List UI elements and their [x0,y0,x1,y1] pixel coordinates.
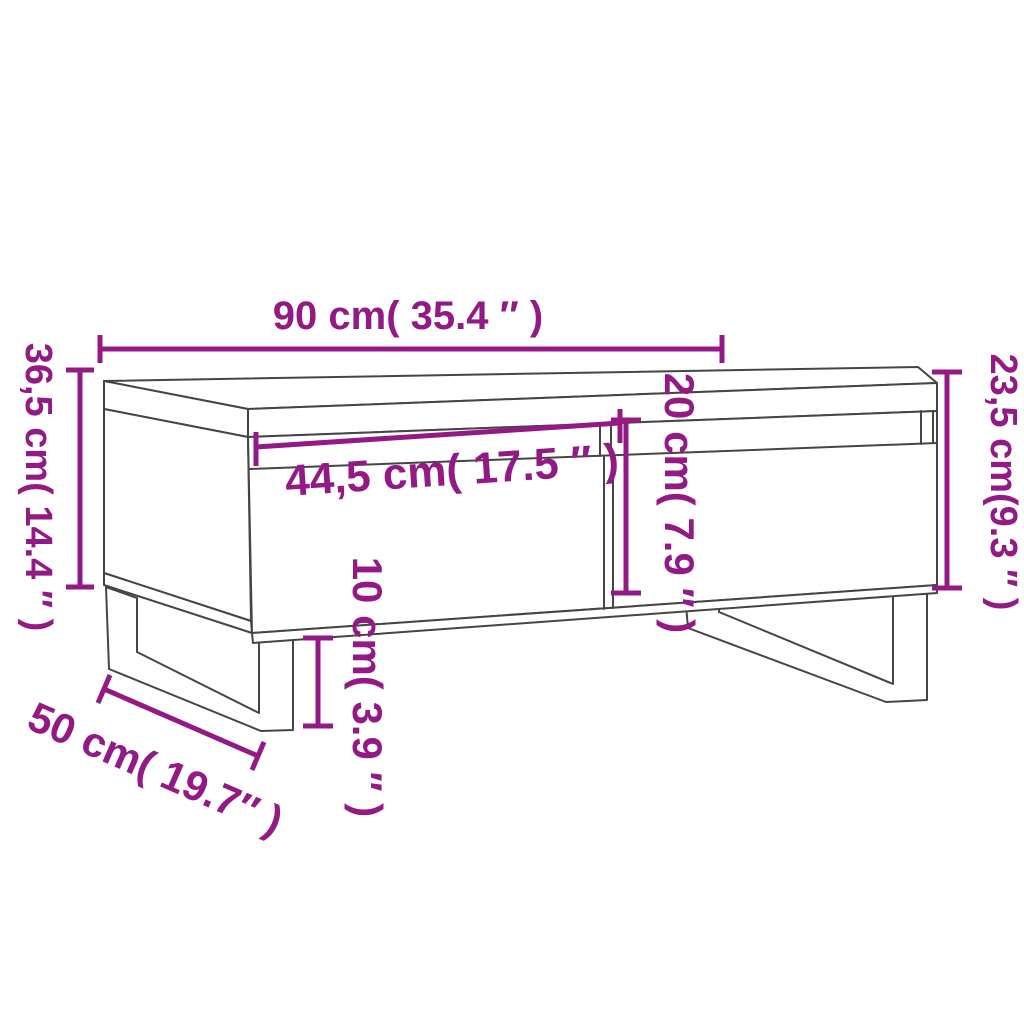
coffee-table-drawing [104,367,937,731]
leg-height-dimension-label: 10 cm( 3.9 ″ ) [344,537,388,837]
diagram-canvas [0,0,1024,1024]
right-height-dimension-label: 23,5 cm(9.3 ″ ) [976,282,1022,682]
leg-height-dimension-line [303,638,333,726]
compartment-height-dimension-label: 20 cm( 7.9 ″ ) [656,353,700,653]
width-dimension-label: 90 cm( 35.4 ″ ) [158,296,658,340]
left-height-dimension-line [66,370,94,587]
left-height-dimension-label: 36,5 cm( 14.4 ″ ) [11,287,57,687]
dimension-diagram: 90 cm( 35.4 ″ ) 36,5 cm( 14.4 ″ ) 23,5 c… [0,0,1024,1024]
